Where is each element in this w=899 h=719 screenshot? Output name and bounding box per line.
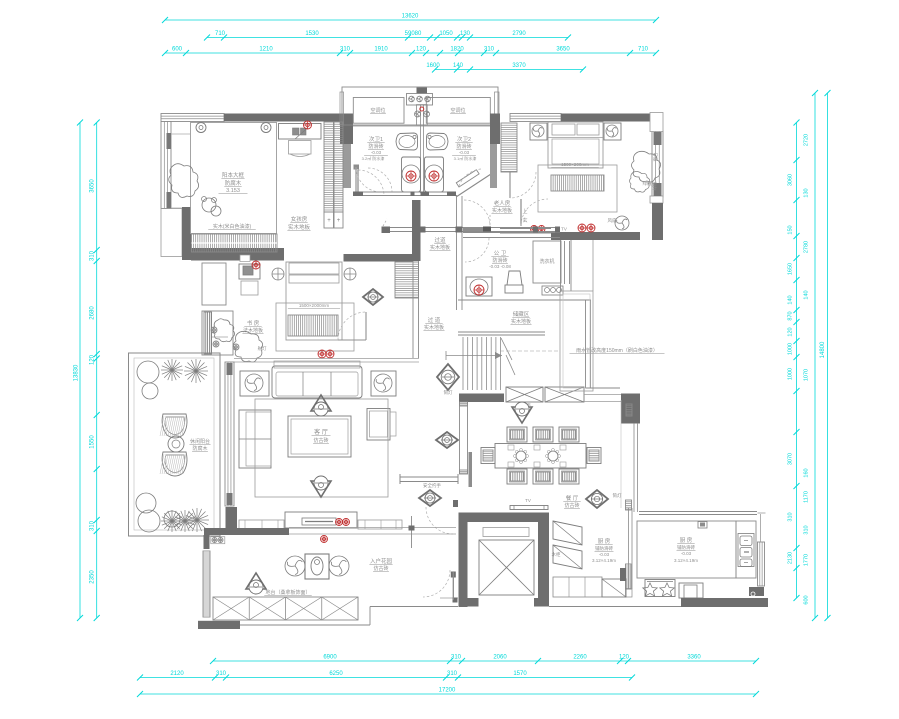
svg-text:+: + — [337, 218, 341, 224]
svg-text:公 卫: 公 卫 — [494, 250, 507, 257]
svg-text:150: 150 — [788, 225, 794, 234]
svg-text:310: 310 — [804, 525, 810, 534]
svg-text:次卫1: 次卫1 — [369, 135, 383, 143]
svg-text:2780: 2780 — [804, 241, 810, 253]
svg-text:2130: 2130 — [788, 552, 794, 564]
svg-text:-0.03: -0.03 — [681, 551, 692, 556]
svg-text:过 道: 过 道 — [428, 316, 441, 324]
svg-text:120: 120 — [416, 47, 427, 53]
svg-text:安全扚手: 安全扚手 — [423, 482, 441, 489]
svg-text:3070: 3070 — [788, 453, 794, 465]
svg-text:老人房: 老人房 — [494, 199, 511, 207]
svg-text:310: 310 — [216, 671, 227, 677]
svg-text:实木地板: 实木地板 — [288, 223, 311, 231]
svg-text:铺防滑砖: 铺防滑砖 — [677, 544, 695, 551]
svg-text:客 厅: 客 厅 — [314, 428, 328, 436]
svg-text:120: 120 — [788, 327, 794, 336]
svg-text:1170: 1170 — [804, 491, 810, 503]
svg-text:140: 140 — [804, 290, 810, 299]
svg-text:空调位: 空调位 — [370, 107, 385, 114]
svg-text:2350: 2350 — [90, 570, 96, 584]
svg-text:120: 120 — [90, 354, 96, 365]
svg-text:TV: TV — [561, 227, 567, 232]
svg-text:310: 310 — [340, 47, 351, 53]
svg-text:710: 710 — [638, 47, 649, 53]
svg-text:1820: 1820 — [450, 47, 464, 53]
svg-text:入户花园: 入户花园 — [370, 557, 393, 565]
svg-text:仿古砖: 仿古砖 — [564, 502, 579, 509]
svg-text:休闲阳台: 休闲阳台 — [190, 438, 210, 445]
svg-text:17200: 17200 — [439, 688, 456, 694]
svg-text:3360: 3360 — [687, 655, 701, 661]
svg-text:710: 710 — [215, 31, 226, 37]
svg-text:防腐木: 防腐木 — [192, 445, 207, 452]
svg-text:绿植: 绿植 — [643, 180, 652, 187]
svg-text:窗台: 窗台 — [652, 152, 659, 161]
svg-text:2060: 2060 — [493, 655, 507, 661]
svg-text:1600: 1600 — [426, 63, 440, 69]
svg-text:餐 厅: 餐 厅 — [566, 494, 579, 502]
svg-text:310: 310 — [447, 671, 458, 677]
svg-text:2790: 2790 — [512, 31, 526, 37]
svg-text:600: 600 — [804, 595, 810, 604]
svg-text:6900: 6900 — [323, 655, 337, 661]
svg-text:3.12×4.19m: 3.12×4.19m — [592, 558, 616, 563]
svg-text:-0.03: -0.03 — [599, 552, 610, 557]
svg-text:1050: 1050 — [439, 31, 453, 37]
svg-text:仿古砖: 仿古砖 — [373, 565, 388, 572]
svg-text:女孩房: 女孩房 — [291, 215, 308, 223]
svg-text:3650: 3650 — [90, 179, 96, 193]
svg-text:13830: 13830 — [74, 364, 80, 381]
svg-text:14800: 14800 — [820, 341, 826, 358]
svg-text:3.153: 3.153 — [226, 188, 240, 194]
svg-text:阳本大框: 阳本大框 — [222, 171, 245, 179]
svg-text:1000: 1000 — [788, 343, 794, 355]
svg-text:储藏区: 储藏区 — [513, 310, 530, 318]
svg-text:130: 130 — [804, 188, 810, 197]
svg-text:书 房: 书 房 — [247, 319, 260, 327]
svg-text:实木(米白色油漆): 实木(米白色油漆) — [213, 223, 252, 230]
svg-text:870: 870 — [788, 311, 794, 320]
svg-text:310: 310 — [484, 47, 495, 53]
svg-text:筒灯: 筒灯 — [444, 389, 453, 396]
svg-text:310: 310 — [451, 655, 462, 661]
svg-text:2720: 2720 — [804, 134, 810, 146]
svg-text:3650: 3650 — [556, 47, 570, 53]
svg-text:-0.03 -0.08: -0.03 -0.08 — [489, 264, 511, 269]
svg-text:TV: TV — [525, 498, 531, 503]
svg-text:筒灯: 筒灯 — [613, 492, 622, 499]
svg-text:2120: 2120 — [170, 671, 184, 677]
svg-text:防腐木: 防腐木 — [225, 179, 242, 187]
svg-text:1500×2000mm: 1500×2000mm — [299, 303, 329, 308]
svg-text:实木地板: 实木地板 — [511, 318, 531, 325]
svg-text:法木地板: 法木地板 — [243, 327, 263, 334]
svg-text:140: 140 — [788, 295, 794, 304]
svg-text:3.12×4.19m: 3.12×4.19m — [674, 558, 698, 563]
svg-text:厨 房: 厨 房 — [680, 536, 693, 544]
svg-text:6250: 6250 — [329, 671, 343, 677]
svg-text:1910: 1910 — [374, 47, 388, 53]
svg-text:1000: 1000 — [788, 368, 794, 380]
svg-text:3.1㎡ 防水漆: 3.1㎡ 防水漆 — [454, 155, 477, 161]
svg-text:1550: 1550 — [90, 435, 96, 449]
svg-text:洗衣机: 洗衣机 — [539, 258, 554, 265]
svg-text:310: 310 — [788, 512, 794, 521]
svg-text:2260: 2260 — [573, 655, 587, 661]
svg-text:雨水管改高度150mm（刷白色油漆）: 雨水管改高度150mm（刷白色油漆） — [576, 347, 658, 354]
svg-text:实木地板: 实木地板 — [492, 207, 512, 214]
svg-text:水柜: 水柜 — [552, 551, 561, 558]
svg-text:防滑砖: 防滑砖 — [492, 257, 507, 264]
svg-text:绿植: 绿植 — [651, 181, 658, 190]
svg-text:玄: 玄 — [522, 217, 527, 224]
svg-text:1770: 1770 — [804, 554, 810, 566]
svg-text:1530: 1530 — [305, 31, 319, 37]
svg-text:59080: 59080 — [405, 31, 422, 37]
svg-text:风扇: 风扇 — [608, 217, 617, 224]
svg-text:过道: 过道 — [434, 236, 446, 244]
svg-text:2680: 2680 — [90, 306, 96, 320]
svg-text:1650: 1650 — [788, 263, 794, 275]
svg-text:130: 130 — [460, 31, 471, 37]
svg-text:310: 310 — [90, 520, 96, 531]
svg-text:仿古砖: 仿古砖 — [313, 437, 328, 444]
svg-text:1070: 1070 — [804, 369, 810, 381]
svg-text:射灯: 射灯 — [258, 345, 267, 352]
svg-text:13620: 13620 — [402, 14, 419, 20]
svg-text:1570: 1570 — [513, 671, 527, 677]
svg-text:空调位: 空调位 — [450, 107, 465, 114]
svg-text:140: 140 — [453, 63, 464, 69]
svg-text:-0.03: -0.03 — [459, 150, 470, 155]
svg-text:3370: 3370 — [512, 63, 526, 69]
svg-text:120: 120 — [619, 655, 630, 661]
svg-text:实木地板: 实木地板 — [424, 324, 444, 331]
svg-text:防滑砖: 防滑砖 — [456, 143, 471, 150]
svg-text:3.2㎡ 防水漆: 3.2㎡ 防水漆 — [362, 155, 385, 161]
svg-text:次卫2: 次卫2 — [457, 135, 471, 143]
svg-text:防滑砖: 防滑砖 — [368, 143, 383, 150]
svg-text:-0.03: -0.03 — [371, 150, 382, 155]
svg-text:310: 310 — [90, 250, 96, 261]
svg-text:1500×200mm: 1500×200mm — [561, 162, 589, 167]
svg-text:160: 160 — [804, 468, 810, 477]
svg-text:地台（桑拿板饰面）: 地台（桑拿板饰面） — [265, 589, 310, 596]
svg-text:铺防滑砖: 铺防滑砖 — [595, 545, 613, 552]
svg-text:3060: 3060 — [788, 174, 794, 186]
svg-text:+: + — [327, 218, 331, 224]
svg-text:厨 房: 厨 房 — [598, 537, 611, 545]
svg-text:实木地板: 实木地板 — [430, 244, 450, 251]
svg-text:1210: 1210 — [259, 47, 273, 53]
svg-text:600: 600 — [172, 47, 183, 53]
